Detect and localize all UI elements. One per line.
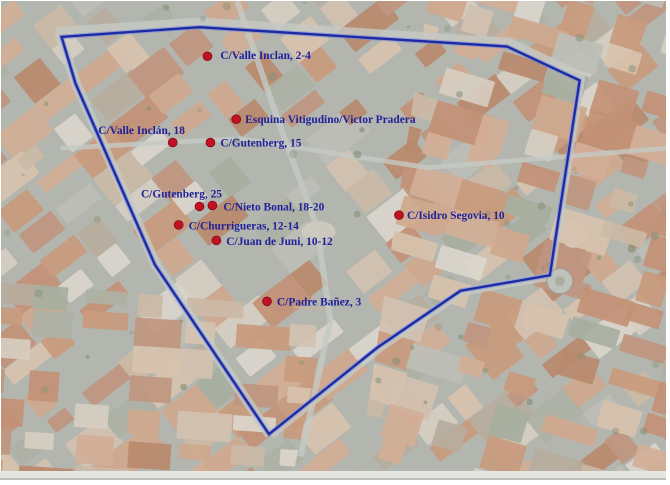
- location-dot: [206, 138, 215, 147]
- frame-bottom-border: [0, 478, 670, 480]
- marker-label: C/Churrigueras, 12-14: [189, 221, 300, 233]
- location-dot: [208, 201, 217, 210]
- marker-label: C/Juan de Juni, 10-12: [226, 236, 333, 248]
- marker-label: C/Padre Bañez, 3: [277, 296, 362, 308]
- marker-label: C/Nieto Bonal, 18-20: [223, 201, 324, 213]
- frame-bottom-band: [0, 471, 670, 478]
- location-dot: [263, 297, 272, 306]
- frame-right-band: [666, 0, 670, 485]
- location-dot: [195, 202, 204, 211]
- location-dot: [203, 52, 212, 61]
- marker-label: C/Valle Inclan, 2-4: [220, 50, 311, 62]
- location-dot: [395, 211, 404, 220]
- location-dot: [174, 220, 183, 229]
- marker-label: C/Valle Inclán, 18: [98, 125, 185, 137]
- marker-label: Esquina Vitigudino/Victor Pradera: [245, 114, 416, 126]
- map-figure: C/Valle Inclan, 2-4Esquina Vitigudino/Vi…: [0, 0, 670, 485]
- marker-label: C/Gutenberg, 15: [220, 137, 301, 149]
- location-dot: [168, 138, 177, 147]
- location-dot: [212, 236, 221, 245]
- location-dot: [232, 115, 241, 124]
- satellite-backdrop: [1, 1, 666, 471]
- marker-label: C/Isidro Segovia, 10: [407, 210, 505, 222]
- aerial-map: C/Valle Inclan, 2-4Esquina Vitigudino/Vi…: [1, 1, 666, 471]
- marker-label: C/Gutenberg, 25: [141, 189, 222, 201]
